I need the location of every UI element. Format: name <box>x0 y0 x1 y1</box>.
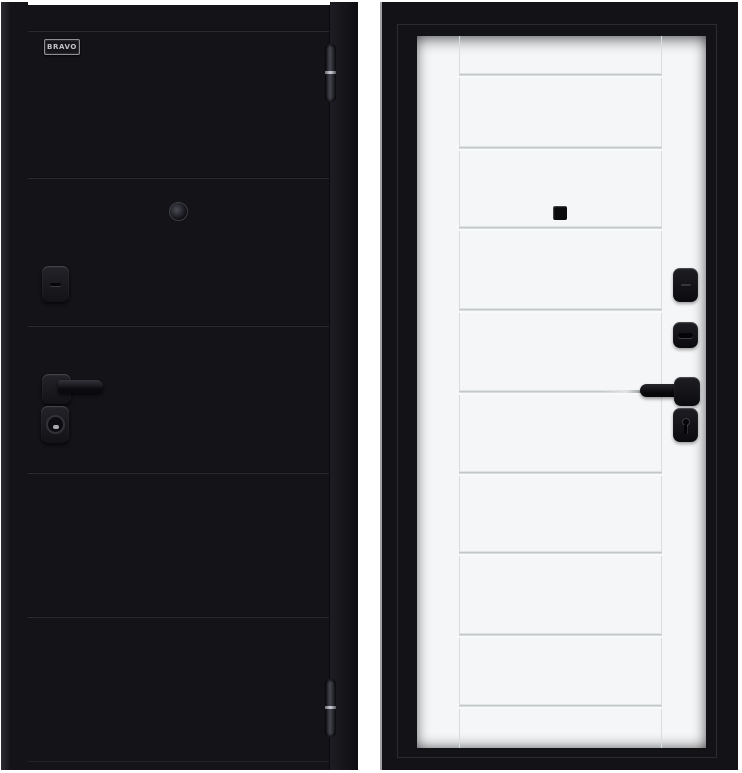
panel-divider <box>459 471 662 476</box>
cylinder-ring <box>46 415 65 434</box>
bottom-hinge <box>325 679 336 737</box>
interior-door-leaf <box>417 36 706 748</box>
interior-door-panel <box>380 2 738 770</box>
background-gap-top <box>28 2 330 5</box>
hinge-post <box>331 2 358 770</box>
deadbolt-escutcheon <box>673 268 698 302</box>
lever-handle <box>58 380 103 393</box>
exterior-frame-edge <box>1 2 10 770</box>
top-hinge <box>325 44 336 102</box>
deadbolt-escutcheon <box>42 266 69 302</box>
thumb-turn-knob <box>678 333 693 338</box>
keyhole-stem <box>684 425 687 434</box>
brand-badge-label: BRAVO <box>47 43 77 51</box>
panel-divider <box>459 551 662 556</box>
peephole-cover <box>553 206 567 220</box>
leaf-bottom-edge <box>28 760 330 762</box>
keyhole-slot <box>50 283 61 286</box>
groove-line <box>28 30 330 32</box>
groove-line <box>28 616 330 618</box>
groove-line <box>28 325 330 327</box>
hinge-knuckle-band <box>325 71 336 74</box>
panel-divider <box>459 308 662 313</box>
hinge-knuckle-band <box>325 706 336 709</box>
brand-badge: BRAVO <box>44 39 80 55</box>
key-glint <box>53 425 59 429</box>
thumb-turn <box>673 322 698 348</box>
panel-divider <box>459 633 662 638</box>
panel-divider <box>459 226 662 231</box>
groove-line <box>28 472 330 474</box>
exterior-door-panel: BRAVO <box>1 2 358 770</box>
peephole <box>169 202 188 221</box>
keyhole-slot <box>681 284 691 286</box>
panel-divider <box>459 73 662 78</box>
lever-reflection <box>602 390 642 393</box>
cylinder-escutcheon <box>673 408 698 442</box>
panel-divider <box>459 146 662 151</box>
door-product-image: BRAVO <box>0 0 742 773</box>
frame-edge-highlight <box>380 2 382 770</box>
groove-line <box>28 177 330 179</box>
panel-divider <box>459 704 662 709</box>
cylinder-escutcheon <box>41 406 69 443</box>
handle-rosette <box>674 377 700 406</box>
